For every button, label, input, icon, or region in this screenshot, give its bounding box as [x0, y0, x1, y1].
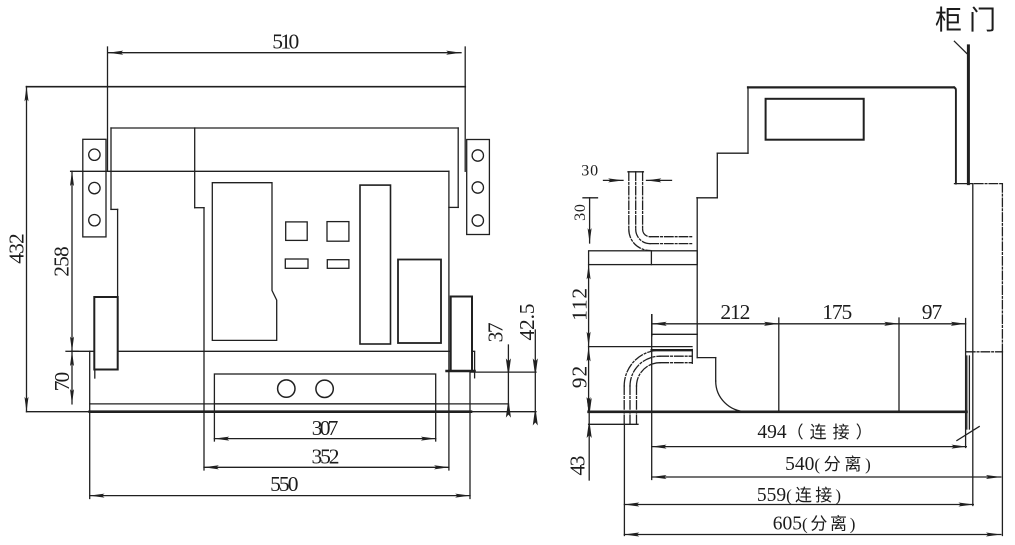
- svg-text:550: 550: [270, 472, 298, 496]
- svg-text:70: 70: [50, 372, 74, 392]
- svg-text:605(分离): 605(分离): [773, 514, 858, 535]
- svg-text:494（连接）: 494（连接）: [757, 422, 878, 443]
- svg-text:30: 30: [572, 204, 589, 221]
- svg-text:258: 258: [50, 246, 74, 277]
- svg-text:540(分离): 540(分离): [785, 454, 874, 475]
- svg-text:510: 510: [272, 30, 299, 54]
- svg-text:307: 307: [312, 416, 339, 440]
- svg-text:212: 212: [720, 300, 750, 324]
- svg-text:42.5: 42.5: [515, 304, 539, 341]
- svg-text:175: 175: [822, 300, 852, 324]
- svg-text:352: 352: [312, 445, 340, 469]
- svg-text:97: 97: [922, 300, 943, 324]
- svg-text:30: 30: [581, 163, 598, 180]
- svg-text:43: 43: [566, 456, 590, 476]
- svg-text:92: 92: [568, 366, 592, 389]
- svg-text:112: 112: [568, 288, 592, 321]
- svg-text:559(连接): 559(连接): [757, 485, 844, 506]
- svg-text:432: 432: [5, 233, 29, 264]
- svg-text:柜门: 柜门: [935, 6, 1003, 36]
- svg-text:37: 37: [483, 322, 507, 342]
